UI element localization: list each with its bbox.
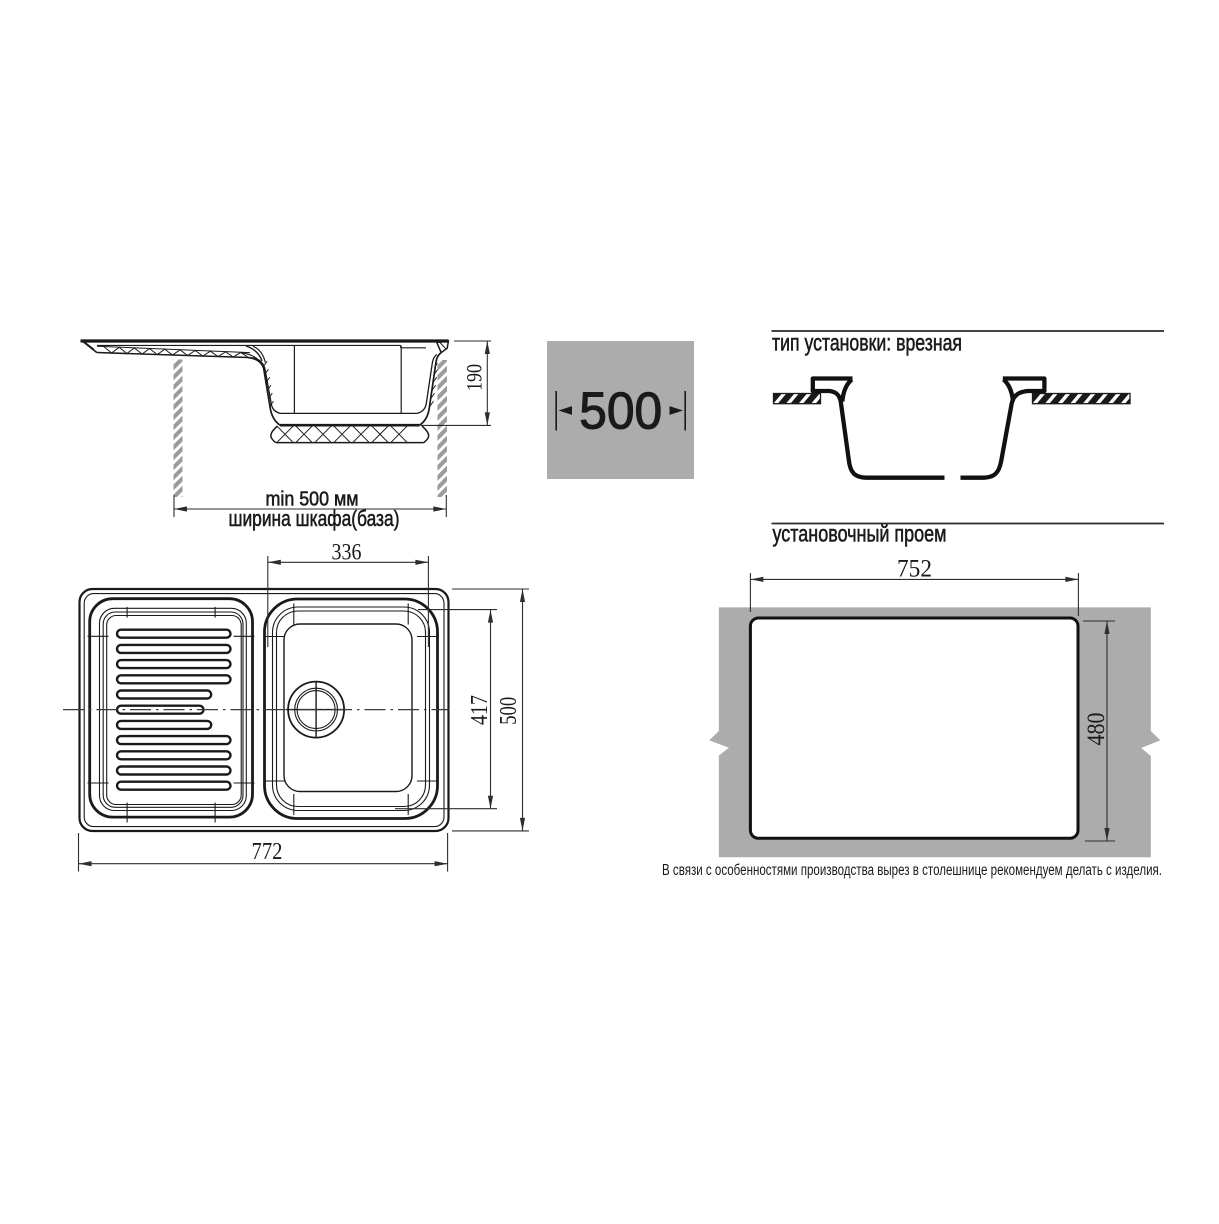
svg-text:ширина шкафа(база): ширина шкафа(база) [229,506,400,531]
svg-text:В связи с особенностями произв: В связи с особенностями производства выр… [662,862,1162,879]
svg-text:500: 500 [579,383,662,441]
svg-text:336: 336 [332,540,362,565]
svg-text:772: 772 [252,839,283,865]
svg-text:тип установки: врезная: тип установки: врезная [772,330,962,356]
svg-text:190: 190 [462,364,487,391]
svg-text:480: 480 [1083,713,1110,746]
svg-text:752: 752 [897,556,932,583]
svg-text:установочный проем: установочный проем [773,521,947,547]
svg-text:500: 500 [496,697,522,725]
svg-text:417: 417 [467,695,493,725]
